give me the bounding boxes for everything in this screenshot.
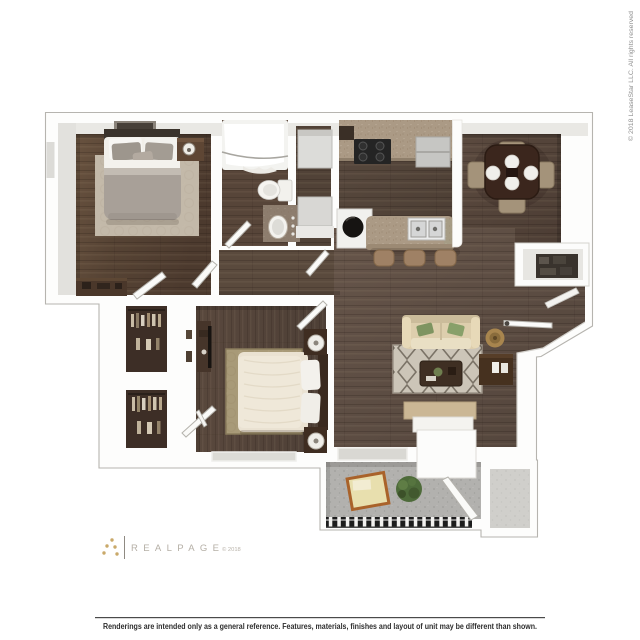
svg-text:© 2018 LeaseStar LLC. All righ: © 2018 LeaseStar LLC. All rights reserve… xyxy=(627,11,635,141)
svg-text:© 2018: © 2018 xyxy=(222,546,241,553)
svg-text:Renderings are intended only a: Renderings are intended only as a genera… xyxy=(103,622,537,631)
